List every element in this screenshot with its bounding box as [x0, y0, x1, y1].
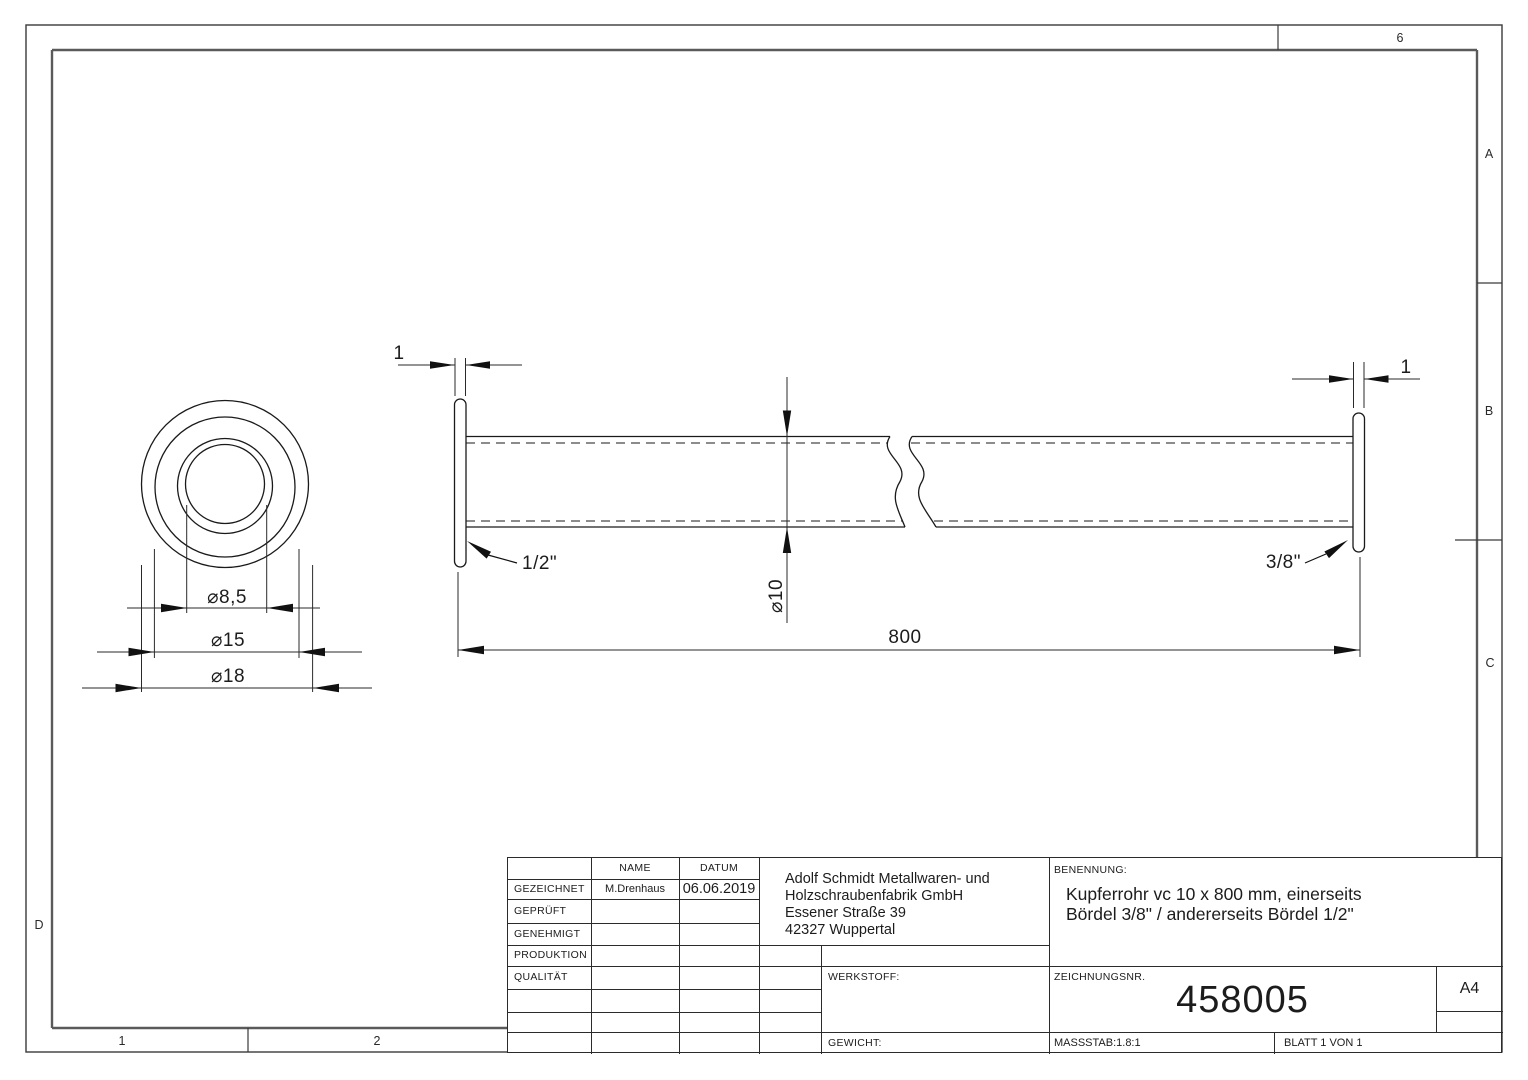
werkstoff-label: WERKSTOFF: [828, 971, 1028, 983]
company-line-2: Holzschraubenfabrik GmbH [785, 888, 1045, 905]
zone-label-1: 1 [119, 1034, 126, 1048]
left-flare [455, 399, 467, 567]
benennung-label: BENENNUNG: [1054, 864, 1254, 876]
right-flare [1353, 413, 1365, 552]
gewicht-label: GEWICHT: [828, 1032, 1028, 1054]
dim-diameter: ⌀10 [766, 579, 787, 613]
zone-label-d: D [34, 918, 43, 932]
benennung-line-1: Kupferrohr vc 10 x 800 mm, einerseits [1066, 884, 1496, 904]
zone-label-a: A [1485, 147, 1494, 161]
zone-label-b: B [1485, 404, 1493, 418]
col-header-name: NAME [591, 858, 679, 879]
company-address: Adolf Schmidt Metallwaren- und Holzschra… [785, 871, 1045, 939]
blatt-value: BLATT 1 VON 1 [1284, 1032, 1494, 1054]
row-label-geprueft: GEPRÜFT [514, 899, 590, 923]
format-value: A4 [1436, 966, 1503, 1011]
massstab-value: MASSSTAB:1.8:1 [1054, 1032, 1274, 1054]
flare-right-label: 3/8" [1266, 552, 1301, 573]
side-view-pipe [455, 399, 1365, 567]
zone-label-6: 6 [1397, 31, 1404, 45]
front-view [142, 401, 309, 568]
company-line-4: 42327 Wuppertal [785, 922, 1045, 939]
company-line-3: Essener Straße 39 [785, 905, 1045, 922]
flare-left-label: 1/2" [522, 553, 557, 574]
dim-wall-left-lines [398, 358, 522, 396]
row-label-genehmigt: GENEHMIGT [514, 923, 590, 945]
benennung-text: Kupferrohr vc 10 x 800 mm, einerseits Bö… [1066, 884, 1496, 924]
row-label-produktion: PRODUKTION [514, 945, 590, 966]
col-header-datum: DATUM [679, 858, 759, 879]
leader-flare-left [467, 541, 517, 563]
zeichnungsnr-value: 458005 [1049, 971, 1436, 1029]
dim-mid-diameter: ⌀15 [211, 630, 245, 651]
benennung-line-2: Bördel 3/8" / andererseits Bördel 1/2" [1066, 904, 1496, 924]
break-curve-right [909, 437, 936, 528]
zone-label-c: C [1485, 656, 1494, 670]
dim-wall-left: 1 [393, 343, 404, 364]
gezeichnet-name: M.Drenhaus [591, 879, 679, 899]
bore-circle [186, 445, 265, 524]
dim-wall-right: 1 [1400, 357, 1411, 378]
company-line-1: Adolf Schmidt Metallwaren- und [785, 871, 1045, 888]
dim-length: 800 [888, 627, 921, 648]
side-view-hidden-lines [466, 443, 1353, 521]
title-block: NAME DATUM GEZEICHNET GEPRÜFT GENEHMIGT … [507, 857, 1502, 1053]
row-label-gezeichnet: GEZEICHNET [514, 879, 590, 899]
drawing-sheet: 6 A B C D 1 2 ⌀8,5 ⌀15 ⌀18 [0, 0, 1528, 1080]
gezeichnet-datum: 06.06.2019 [679, 879, 759, 899]
leader-flare-right [1305, 540, 1348, 563]
row-label-qualitaet: QUALITÄT [514, 966, 590, 989]
dim-outer-diameter: ⌀18 [211, 666, 245, 687]
tube-outer-circle [178, 439, 273, 534]
zone-label-2: 2 [374, 1034, 381, 1048]
flare-outer-circle [142, 401, 309, 568]
dim-bore-diameter: ⌀8,5 [207, 587, 247, 608]
break-curve-left [887, 437, 905, 528]
